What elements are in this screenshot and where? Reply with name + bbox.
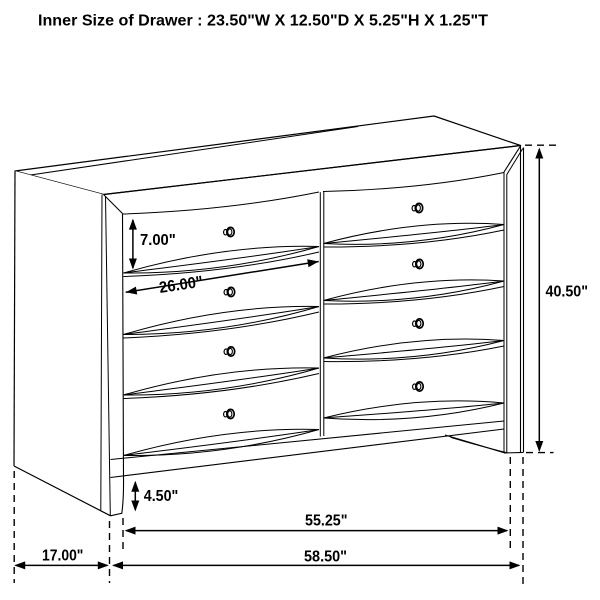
svg-text:Inner Size of Drawer : 23.50"W: Inner Size of Drawer : 23.50"W X 12.50"D…	[38, 13, 488, 30]
svg-text:4.50": 4.50"	[144, 488, 179, 505]
svg-text:26.00": 26.00"	[158, 274, 204, 297]
svg-text:17.00": 17.00"	[42, 548, 83, 565]
svg-text:7.00": 7.00"	[140, 232, 176, 249]
svg-text:40.50": 40.50"	[546, 284, 589, 301]
svg-text:55.25": 55.25"	[305, 513, 348, 530]
svg-text:58.50": 58.50"	[304, 549, 347, 566]
